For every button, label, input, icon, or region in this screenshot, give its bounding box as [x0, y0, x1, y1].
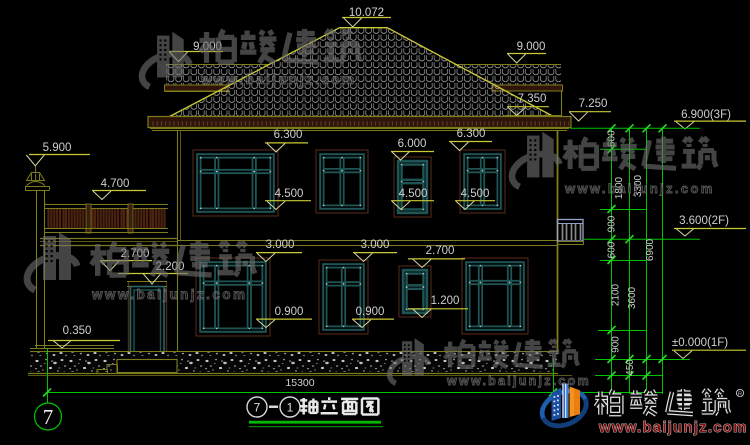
svg-text:5.900: 5.900	[43, 142, 72, 154]
svg-text:7.250: 7.250	[579, 98, 608, 110]
svg-text:900: 900	[611, 336, 622, 353]
svg-text:www.baijunjz.com: www.baijunjz.com	[446, 374, 591, 388]
svg-text:6.000: 6.000	[398, 138, 427, 150]
svg-text:4.500: 4.500	[275, 188, 304, 200]
svg-text:6.300: 6.300	[274, 129, 303, 141]
svg-text:9.000: 9.000	[517, 41, 546, 53]
svg-text:R: R	[738, 392, 742, 398]
svg-text:7: 7	[43, 405, 54, 429]
svg-text:15300: 15300	[285, 377, 314, 389]
svg-text:1.200: 1.200	[431, 295, 460, 307]
svg-text:6900: 6900	[645, 238, 656, 261]
svg-text:7.350: 7.350	[518, 93, 547, 105]
svg-text:3.000: 3.000	[361, 239, 390, 251]
svg-text:6.900(3F): 6.900(3F)	[681, 109, 731, 121]
svg-text:4.700: 4.700	[101, 178, 130, 190]
svg-text:0.350: 0.350	[63, 325, 92, 337]
svg-text:3600: 3600	[627, 286, 638, 309]
svg-text:0.900: 0.900	[275, 306, 304, 318]
svg-text:www.baijunjz.com: www.baijunjz.com	[564, 181, 715, 196]
svg-text:4.500: 4.500	[461, 188, 490, 200]
svg-text:4.500: 4.500	[399, 188, 428, 200]
svg-text:±0.000(1F): ±0.000(1F)	[672, 337, 728, 349]
svg-text:3.000: 3.000	[266, 239, 295, 251]
svg-text:www.baijunjz.com: www.baijunjz.com	[598, 419, 748, 436]
svg-text:www.baijunjz.com: www.baijunjz.com	[91, 287, 247, 302]
svg-text:900: 900	[607, 215, 618, 232]
svg-text:0.900: 0.900	[356, 306, 385, 318]
svg-text:2.700: 2.700	[426, 245, 455, 257]
svg-text:2100: 2100	[611, 283, 622, 306]
svg-text:600: 600	[607, 241, 618, 258]
svg-text:3.600(2F): 3.600(2F)	[679, 215, 729, 227]
svg-text:450: 450	[625, 359, 636, 376]
svg-text:www.baijunjz.com: www.baijunjz.com	[200, 72, 356, 87]
svg-text:7: 7	[254, 401, 261, 415]
svg-text:1: 1	[287, 401, 294, 415]
svg-text:6.300: 6.300	[457, 128, 486, 140]
